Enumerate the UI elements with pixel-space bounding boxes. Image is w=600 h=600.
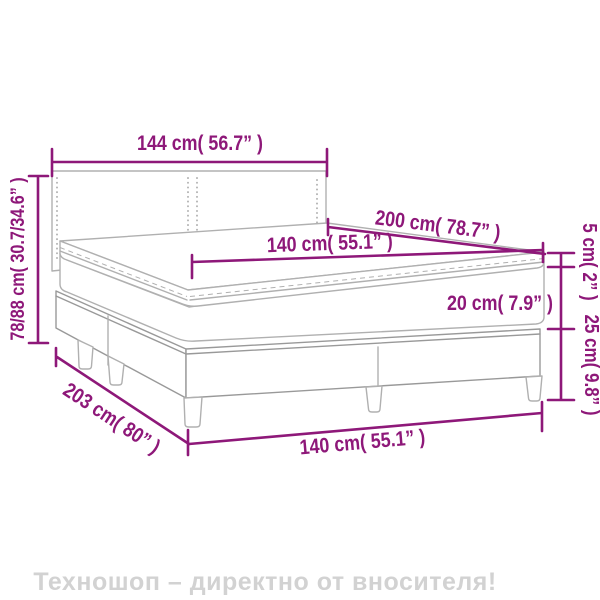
- leg-front-right: [526, 376, 542, 401]
- dimension-line: [548, 253, 574, 400]
- bed-dimension-drawing: 144 cm( 56.7” ) 78/88 cm( 30.7/34.6” ) 2…: [0, 0, 600, 600]
- dim-label-bed-height: 78/88 cm( 30.7/34.6” ): [7, 177, 29, 340]
- dim-label-mattress-height: 20 cm( 7.9” ): [447, 292, 553, 316]
- dim-label-mattress-width: 140 cm( 55.1” ): [266, 229, 393, 257]
- leg-front-left: [184, 397, 202, 427]
- dim-bed-height: 78/88 cm( 30.7/34.6” ): [7, 176, 48, 343]
- leg-front-middle: [366, 386, 382, 412]
- dimension-diagram-image: 144 cm( 56.7” ) 78/88 cm( 30.7/34.6” ) 2…: [0, 0, 600, 600]
- store-watermark: Техношоп – директно от вносителя!: [33, 570, 496, 595]
- dimension-line: [29, 176, 48, 343]
- dim-label-topper-height: 5 cm( 2” ): [579, 223, 600, 300]
- dim-base-width: 140 cm( 55.1” ): [188, 402, 542, 460]
- dim-label-base-width: 140 cm( 55.1” ): [299, 425, 426, 460]
- dim-label-base-height: 25 cm( 9.8” ): [581, 314, 600, 415]
- dim-headboard-width: 144 cm( 56.7” ): [52, 132, 327, 176]
- dim-label-headboard-width: 144 cm( 56.7” ): [137, 132, 263, 156]
